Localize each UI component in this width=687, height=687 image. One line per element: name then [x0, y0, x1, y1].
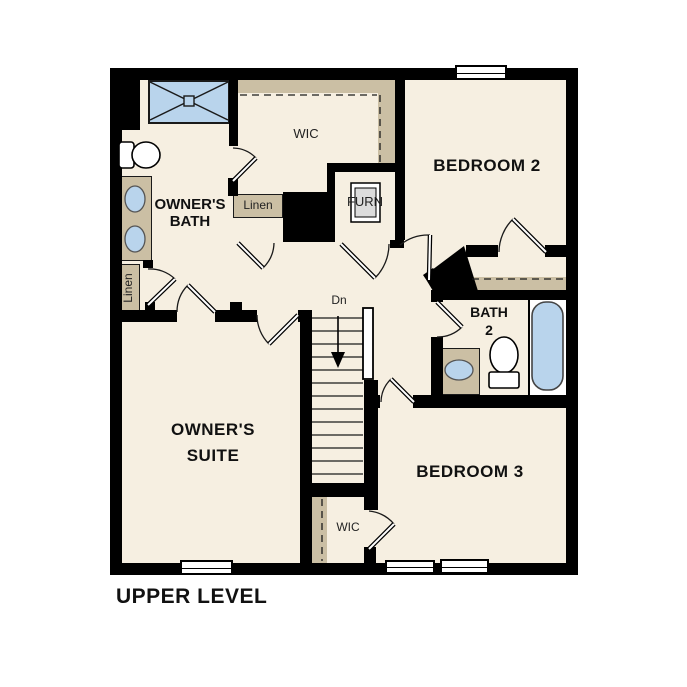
door-arc-bedroom3 [381, 379, 391, 402]
bath2-line2: 2 [459, 321, 519, 339]
room-label-bedroom2: BEDROOM 2 [427, 156, 547, 176]
owners-bath-line2: BATH [130, 213, 250, 230]
door-arc-bedroom2-closet [499, 219, 513, 252]
door-arc-wic-bottom [369, 511, 394, 524]
owners-bath-line1: OWNER'S [130, 196, 250, 213]
room-label-bath2: BATH 2 [459, 303, 519, 339]
owners-suite-line2: SUITE [153, 443, 273, 469]
door-leaf-inner [269, 315, 298, 344]
toilet-bowl [132, 142, 160, 168]
door-arc-linen-left [148, 269, 175, 279]
stair-railing [363, 308, 373, 379]
door-leaf-inner [429, 235, 430, 280]
door-arc-owners-suite [257, 315, 269, 344]
room-label-wic-bottom: WIC [328, 521, 368, 535]
sink [445, 360, 473, 380]
room-label-linen-left: Linen [117, 264, 139, 312]
door-leaf-inner [513, 219, 546, 252]
door-arc-furnace [375, 244, 389, 278]
stairs-down-label: Dn [324, 294, 354, 308]
toilet-tank [489, 372, 519, 388]
door-leaf-inner [391, 379, 414, 402]
owners-suite-line1: OWNER'S [153, 417, 273, 443]
bath2-line1: BATH [459, 303, 519, 321]
door-arc-owners-bath [177, 285, 188, 312]
shower-drain [184, 96, 194, 106]
door-leaf-inner [233, 158, 256, 181]
stairs-down-arrow-head [331, 352, 345, 368]
door-leaf-inner [369, 524, 394, 549]
room-label-bedroom3: BEDROOM 3 [410, 462, 530, 482]
plan-title: UPPER LEVEL [116, 585, 416, 609]
room-label-owners-suite: OWNER'S SUITE [153, 417, 273, 468]
door-leaf-inner [188, 285, 215, 312]
room-label-furnace: FURN [340, 195, 390, 210]
toilet-bowl [490, 337, 518, 373]
floor-plan: OWNER'S BATH WIC Linen FURN BEDROOM 2 BA… [0, 0, 687, 687]
door-arc-wic-top [233, 148, 256, 158]
door-arc-bedroom2 [400, 235, 430, 245]
room-label-linen-top: Linen [233, 199, 283, 213]
plan-linework [0, 0, 687, 687]
room-label-owners-bath: OWNER'S BATH [130, 196, 250, 231]
door-leaf-inner [238, 243, 263, 268]
room-label-wic-top: WIC [281, 127, 331, 142]
bathtub [532, 302, 563, 390]
door-leaf-inner [341, 244, 375, 278]
door-arc-linen-top [263, 243, 274, 268]
door-leaf-inner [148, 279, 175, 305]
